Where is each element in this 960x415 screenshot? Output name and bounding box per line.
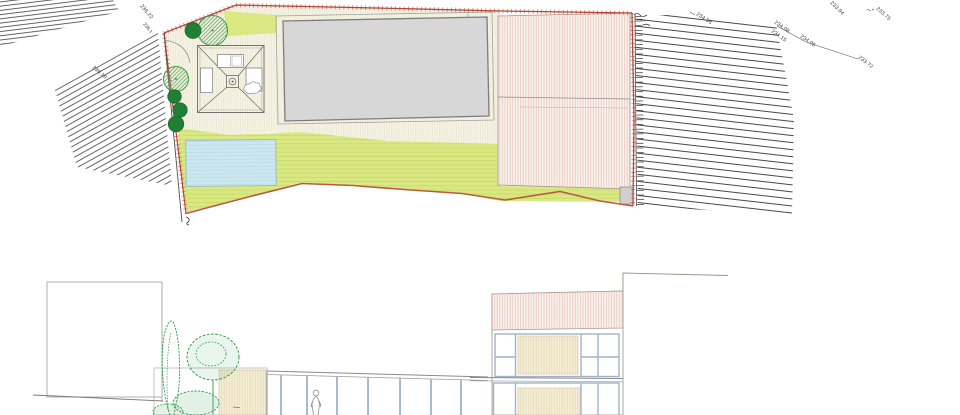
lower-floor-panel	[518, 388, 580, 415]
elevation-drawing	[33, 273, 728, 415]
tick-mark	[867, 9, 871, 11]
pavilion-finial-dot	[232, 81, 234, 83]
site-plan: 236.22 236.19 236.1 234.38 234.08 234.15…	[0, 0, 892, 225]
neighbor-roof	[498, 13, 630, 189]
ground-line	[33, 395, 163, 401]
pool	[186, 140, 276, 187]
bush-icon	[185, 23, 201, 39]
spot-elevation-label: 233.94	[829, 0, 846, 17]
facade-mullions	[281, 375, 461, 415]
cypress-tree-inner	[167, 332, 171, 410]
spot-elevation-label: 233.75	[875, 6, 892, 22]
boundary-corner-mark	[186, 217, 189, 225]
grass-band	[224, 11, 277, 36]
person-figure	[311, 390, 320, 415]
drawing-canvas: 236.22 236.19 236.1 234.38 234.08 234.15…	[0, 0, 960, 415]
slope-hatch-right	[635, 14, 794, 215]
round-tree	[187, 334, 239, 380]
spot-elevation-label-red: 236.1	[141, 22, 153, 35]
spot-elevation-label: 233.72	[857, 55, 874, 70]
elevation-right-building	[470, 273, 728, 415]
neighbor-building	[498, 13, 633, 204]
facade-beam-top	[267, 371, 488, 377]
pavilion-bench-left	[201, 68, 213, 93]
elevation-left-volume	[47, 282, 162, 397]
roof-slab	[283, 17, 489, 121]
spot-elevation-label: 236.22	[138, 3, 154, 20]
glazed-facade	[233, 371, 488, 415]
upper-floor-panel	[518, 336, 578, 374]
bush-icon	[173, 103, 187, 117]
bush-icon	[168, 90, 182, 104]
tree-trunk-dot	[175, 78, 177, 80]
parapet-line-right	[623, 273, 728, 276]
slope-hatch-left	[55, 33, 172, 186]
bush-icon	[168, 116, 184, 132]
scanned-architectural-drawing: 236.22 236.19 236.1 234.38 234.08 234.15…	[0, 0, 960, 415]
spot-elevation-label: 234.05	[799, 34, 817, 49]
roof-fascia-band	[492, 291, 623, 330]
tree-trunk-dot	[212, 30, 214, 32]
main-house-roof	[276, 12, 494, 124]
spot-dot	[872, 9, 873, 10]
slope-hatch-top-left	[0, 0, 119, 46]
facade-beam-bottom	[267, 375, 488, 381]
